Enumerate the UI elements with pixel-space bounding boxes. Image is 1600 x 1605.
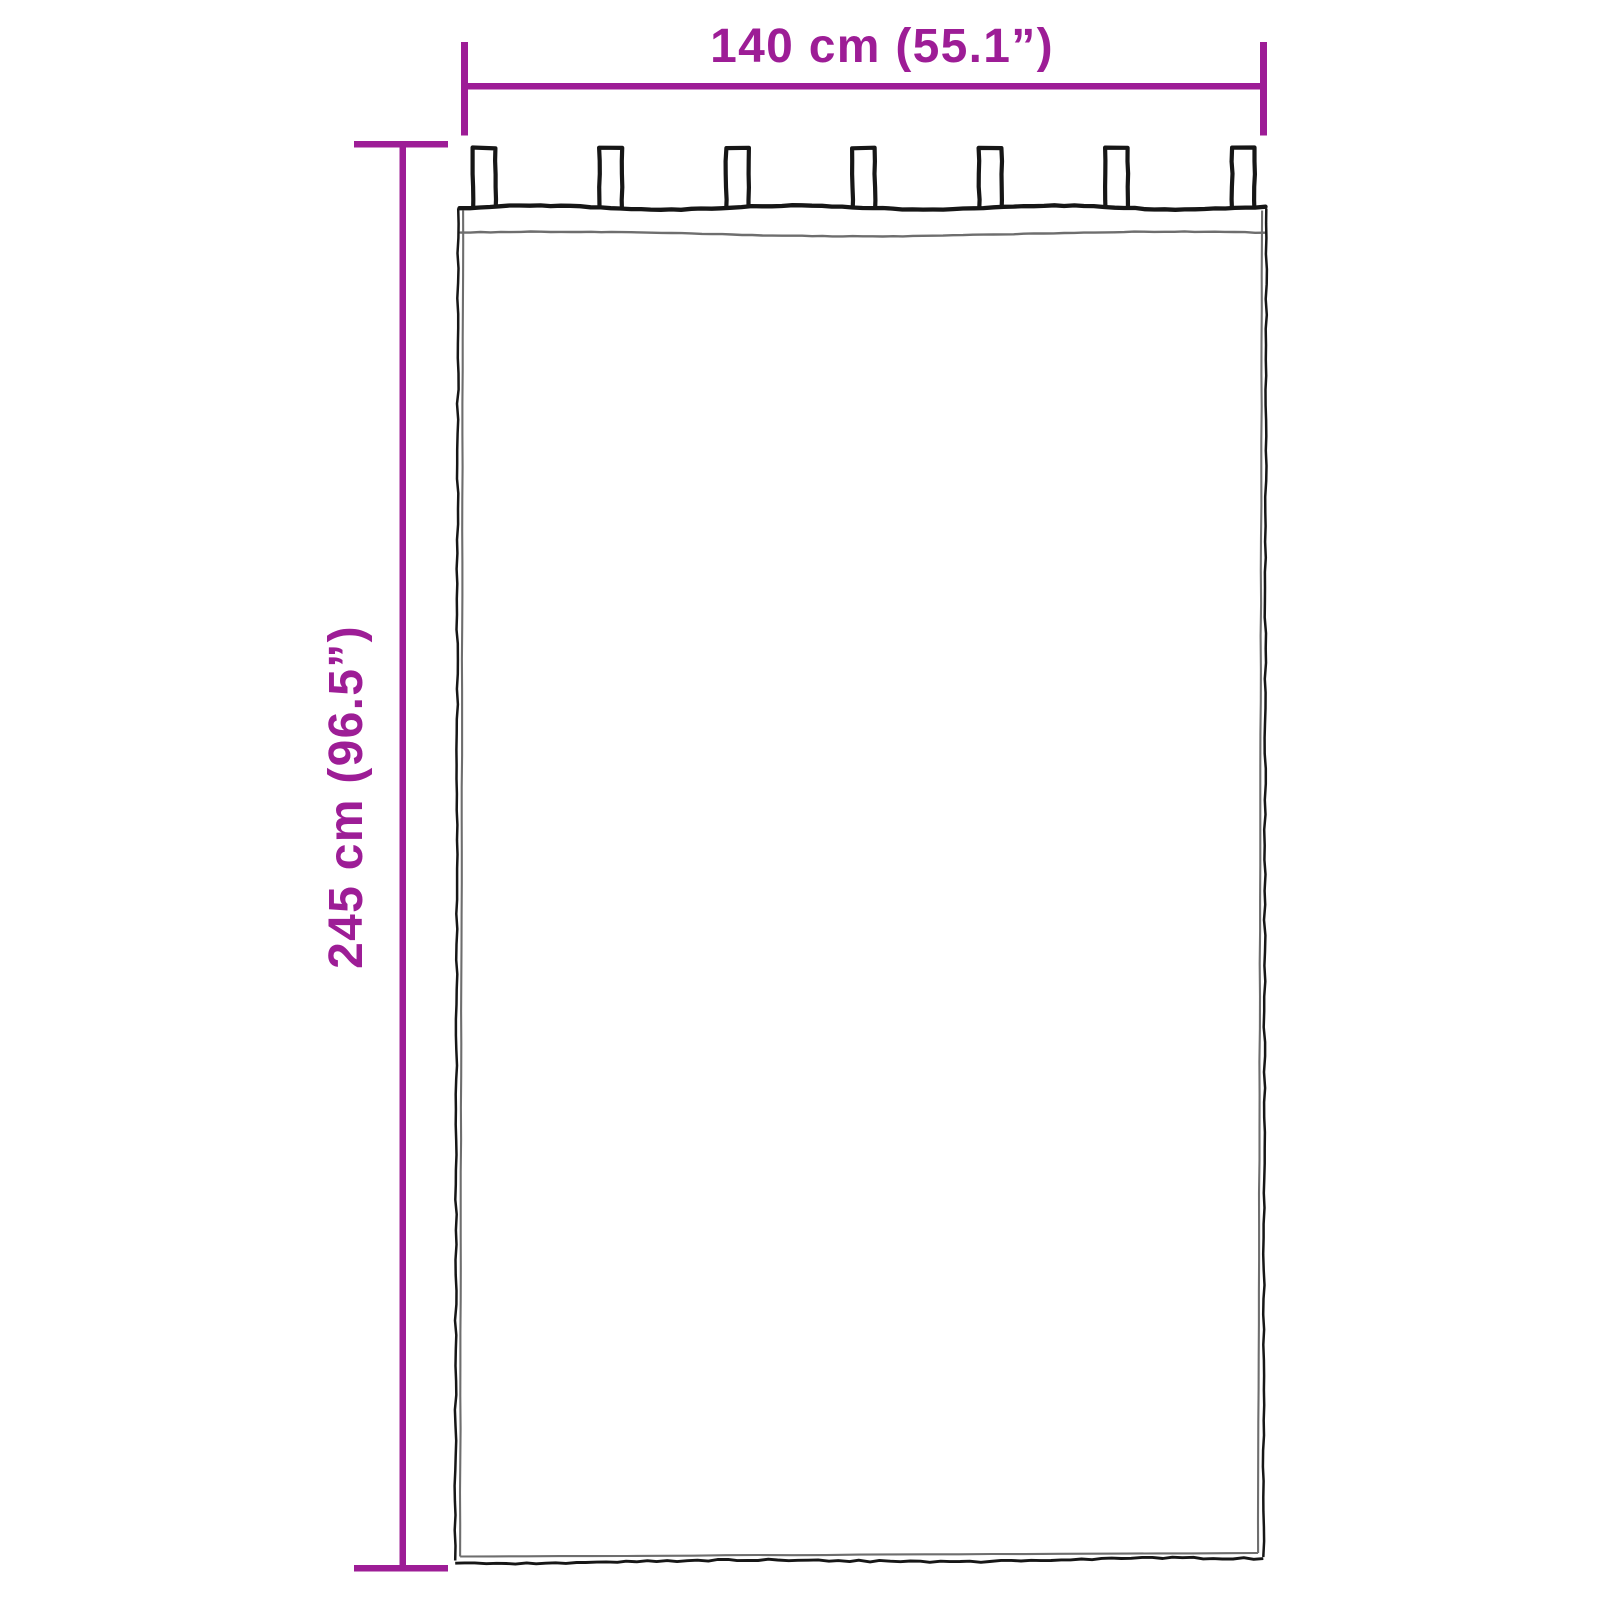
svg-text:245 cm (96.5”): 245 cm (96.5”) xyxy=(320,625,373,969)
svg-text:140 cm (55.1”): 140 cm (55.1”) xyxy=(710,20,1054,73)
